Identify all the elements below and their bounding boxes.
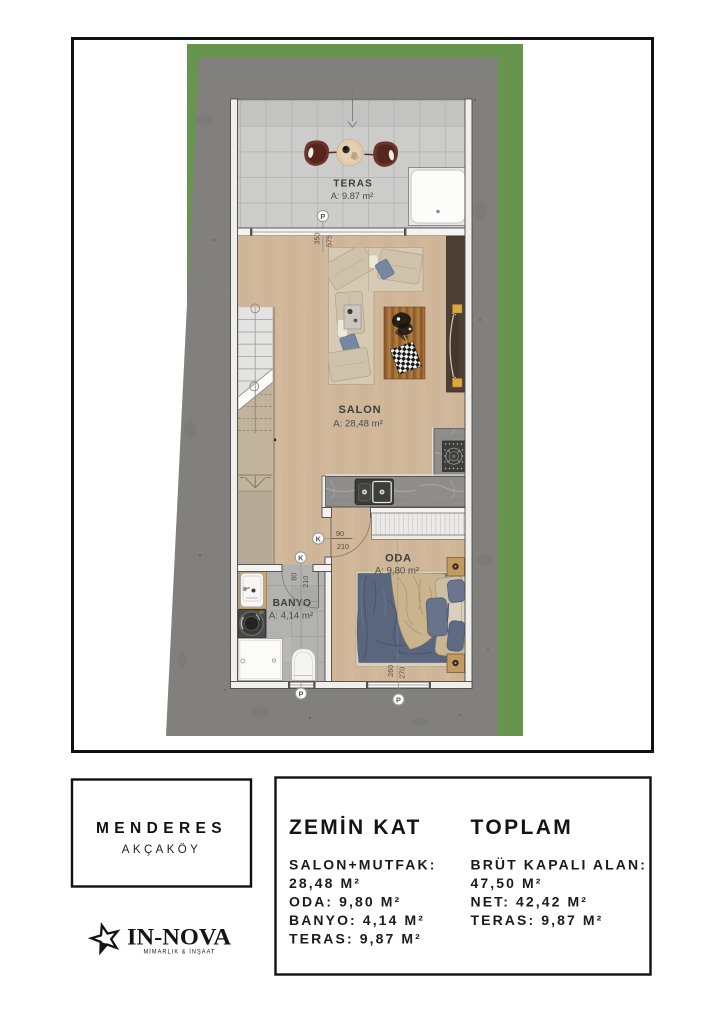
svg-text:IN-NOVA: IN-NOVA: [127, 925, 231, 951]
svg-text:80: 80: [289, 573, 298, 581]
svg-text:NET: 42,42 M²: NET: 42,42 M²: [471, 894, 589, 910]
svg-text:BRÜT KAPALI ALAN:: BRÜT KAPALI ALAN:: [471, 857, 647, 873]
svg-text:TOPLAM: TOPLAM: [471, 816, 574, 839]
svg-text:K: K: [316, 534, 322, 543]
svg-text:SALON: SALON: [339, 404, 382, 416]
svg-text:P: P: [299, 689, 304, 698]
svg-text:575: 575: [325, 235, 334, 247]
svg-text:K: K: [298, 553, 304, 562]
svg-text:350: 350: [313, 233, 322, 245]
svg-text:TERAS: 9,87 M²: TERAS: 9,87 M²: [289, 931, 422, 947]
svg-text:AKÇAKÖY: AKÇAKÖY: [122, 844, 201, 856]
svg-text:ZEMİN KAT: ZEMİN KAT: [289, 816, 422, 839]
svg-text:SALON+MUTFAK:: SALON+MUTFAK:: [289, 857, 436, 873]
svg-text:210: 210: [337, 542, 349, 551]
svg-text:28,48 M²: 28,48 M²: [289, 875, 361, 891]
svg-text:A: 9.87 m²: A: 9.87 m²: [331, 191, 373, 201]
svg-text:TERAS: 9,87 M²: TERAS: 9,87 M²: [471, 912, 604, 928]
svg-text:47,50 M²: 47,50 M²: [471, 875, 543, 891]
svg-text:260: 260: [386, 665, 395, 677]
svg-text:ODA: 9,80 M²: ODA: 9,80 M²: [289, 894, 401, 910]
svg-text:MİMARLIK & İNŞAAT: MİMARLIK & İNŞAAT: [144, 947, 216, 956]
svg-text:A: 4,14 m²: A: 4,14 m²: [269, 611, 314, 622]
svg-text:P: P: [320, 212, 325, 221]
svg-text:BANYO: 4,14 M²: BANYO: 4,14 M²: [289, 912, 425, 928]
svg-text:90: 90: [336, 529, 344, 538]
svg-text:BANYO: BANYO: [273, 598, 312, 609]
svg-text:MENDERES: MENDERES: [96, 820, 227, 837]
svg-text:ODA: ODA: [385, 553, 412, 565]
svg-text:TERAS: TERAS: [333, 179, 373, 190]
svg-text:270: 270: [397, 667, 406, 679]
svg-text:210: 210: [301, 576, 310, 588]
svg-text:A: 28,48 m²: A: 28,48 m²: [333, 419, 383, 430]
svg-text:P: P: [396, 695, 401, 704]
